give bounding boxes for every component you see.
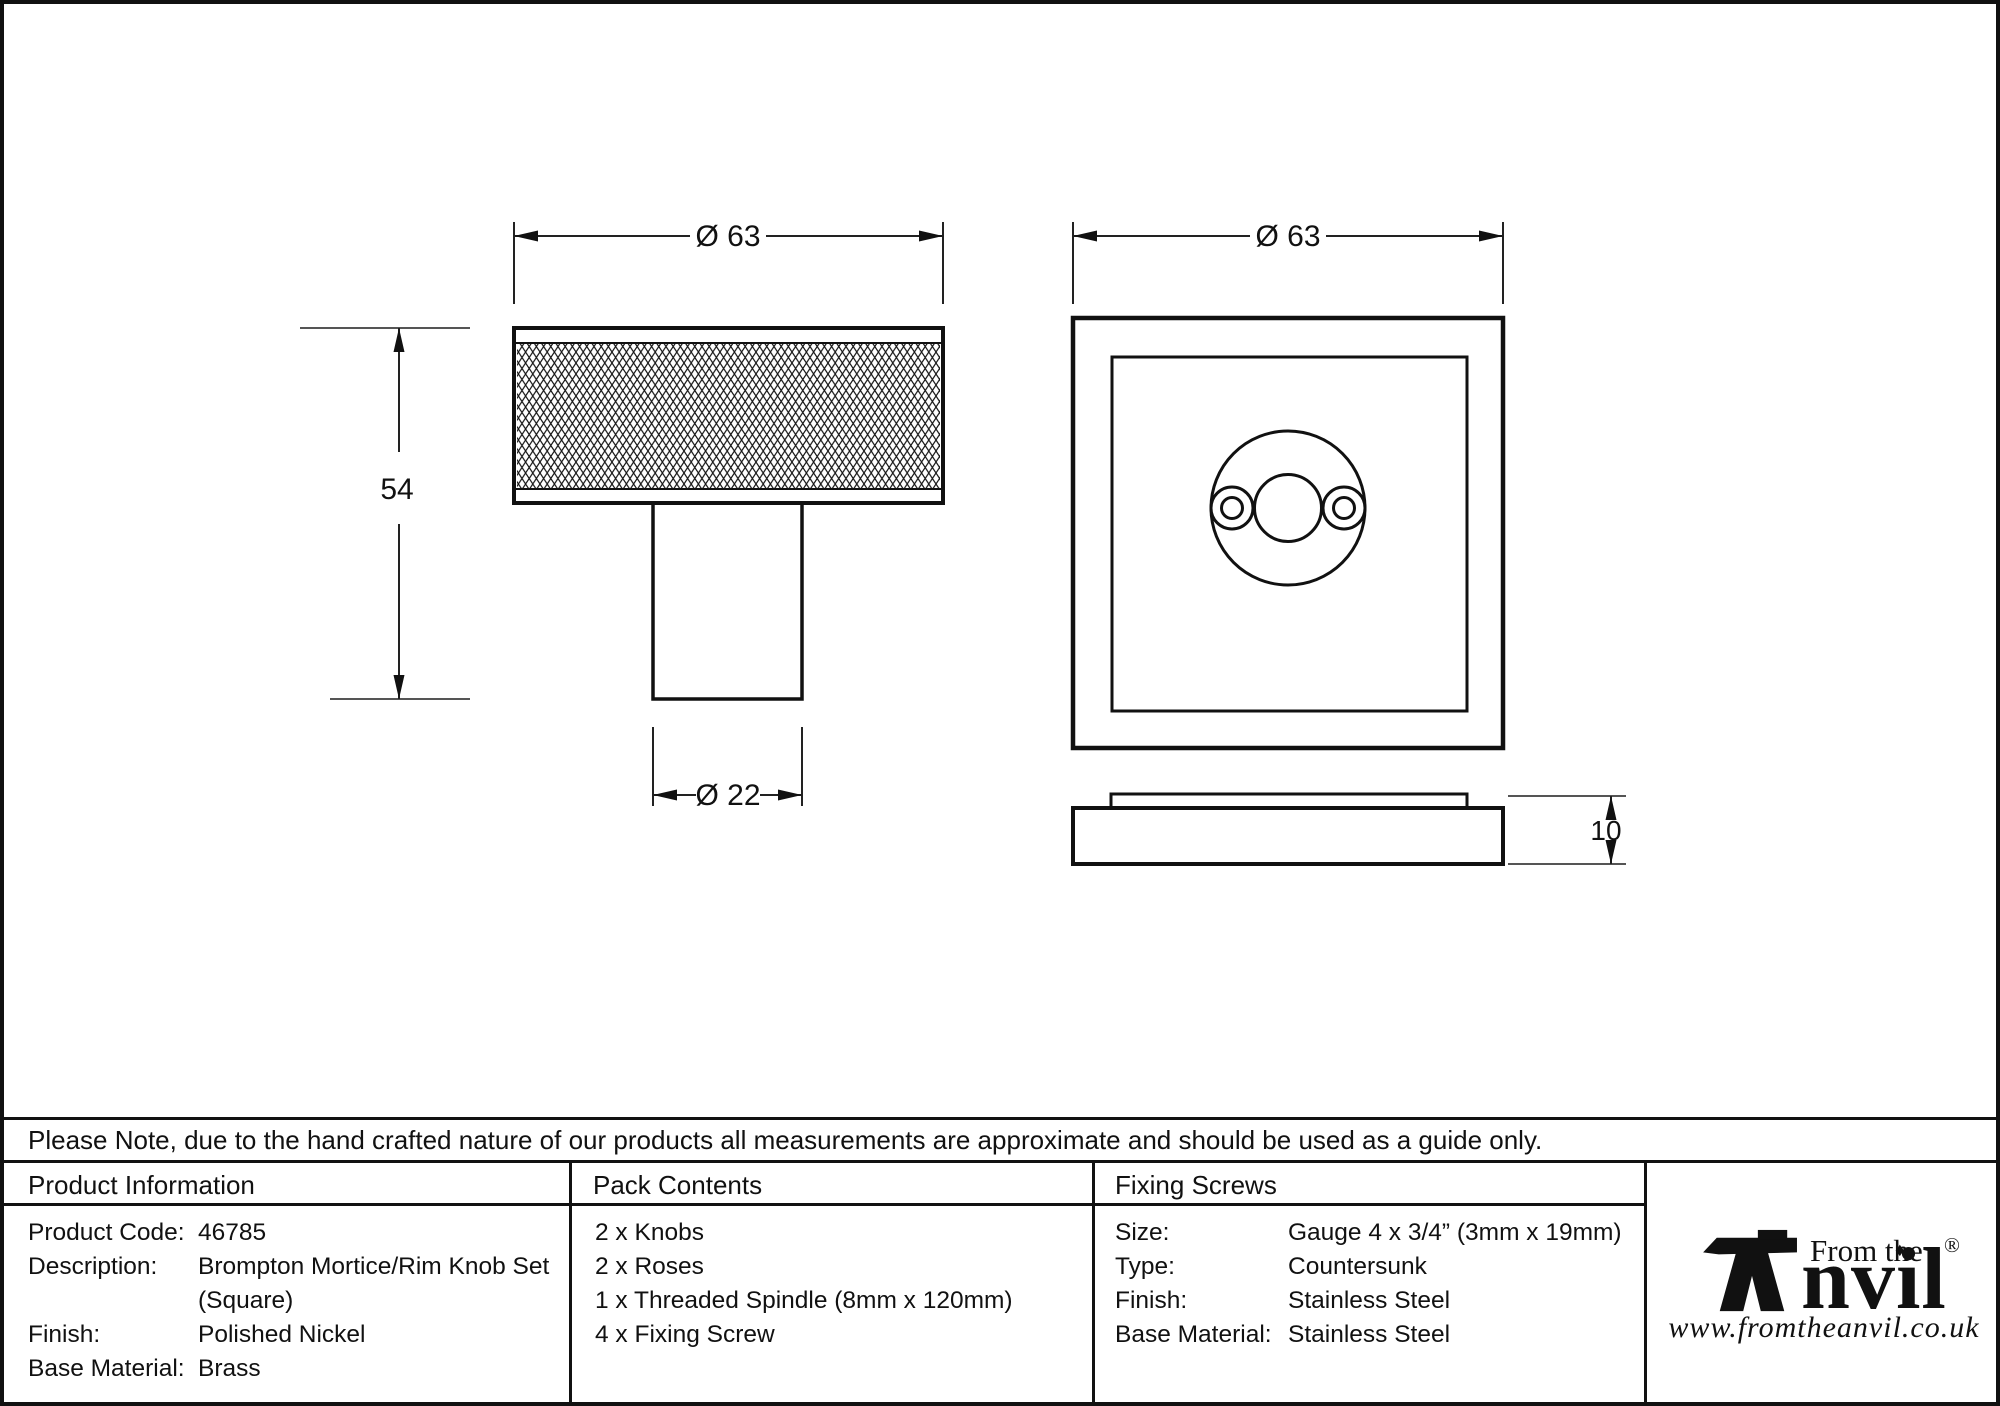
table-row: Finish: Stainless Steel xyxy=(1115,1284,1643,1318)
screw-hole-left xyxy=(1222,498,1243,519)
dim-knob-height-label: 54 xyxy=(380,473,413,506)
row-value: Polished Nickel xyxy=(198,1318,570,1352)
list-item: 1 x Threaded Spindle (8mm x 120mm) xyxy=(595,1284,1085,1318)
row-value: 46785 xyxy=(198,1216,570,1250)
row-label: Finish: xyxy=(28,1318,198,1352)
spec-sheet-page: Ø 63 54 xyxy=(0,0,2000,1406)
arrow-left-icon xyxy=(514,231,538,242)
table-row: Base Material: Brass xyxy=(28,1352,573,1386)
pack-contents-column: 2 x Knobs 2 x Roses 1 x Threaded Spindle… xyxy=(595,1216,1085,1352)
table-row: Size: Gauge 4 x 3/4” (3mm x 19mm) xyxy=(1115,1216,1643,1250)
table-row: Product Code: 46785 xyxy=(28,1216,573,1250)
row-value: Stainless Steel xyxy=(1288,1284,1643,1318)
column-divider-2 xyxy=(1092,1160,1095,1406)
disclaimer-note: Please Note, due to the hand crafted nat… xyxy=(28,1121,1928,1159)
row-value: Stainless Steel xyxy=(1288,1318,1643,1352)
list-item: 4 x Fixing Screw xyxy=(595,1318,1085,1352)
row-value: Brompton Mortice/Rim Knob Set (Square) xyxy=(198,1250,570,1318)
product-information-header: Product Information xyxy=(28,1170,255,1201)
product-information-column: Product Code: 46785 Description: Brompto… xyxy=(28,1216,573,1386)
rose-side-profile: 10 xyxy=(1073,794,1626,864)
dim-rose-width-label: Ø 63 xyxy=(1255,220,1320,253)
brand-logo: From the ♦ nvil ® www.fromtheanvil.co.uk xyxy=(1648,1163,2000,1402)
logo-url: www.fromtheanvil.co.uk xyxy=(1648,1311,2000,1345)
column-divider-3 xyxy=(1644,1160,1647,1406)
row-label: Product Code: xyxy=(28,1216,198,1250)
rose-front-view: Ø 63 xyxy=(1073,220,1503,748)
table-row: Type: Countersunk xyxy=(1115,1250,1643,1284)
dim-knob-diameter-label: Ø 63 xyxy=(695,220,760,253)
fixing-screws-column: Size: Gauge 4 x 3/4” (3mm x 19mm) Type: … xyxy=(1115,1216,1643,1352)
rose-profile-base xyxy=(1073,808,1503,864)
table-row: Base Material: Stainless Steel xyxy=(1115,1318,1643,1352)
row-value: Gauge 4 x 3/4” (3mm x 19mm) xyxy=(1288,1216,1643,1250)
row-label: Size: xyxy=(1115,1216,1288,1250)
dim-rose-thickness-label: 10 xyxy=(1590,815,1621,846)
anvil-icon xyxy=(1703,1227,1801,1315)
knob-knurl-pattern xyxy=(517,344,940,489)
dim-stem-diameter-label: Ø 22 xyxy=(695,779,760,812)
row-label: Description: xyxy=(28,1250,198,1318)
list-item: 2 x Roses xyxy=(595,1250,1085,1284)
arrow-right-icon xyxy=(919,231,943,242)
pack-contents-header: Pack Contents xyxy=(593,1170,762,1201)
registered-trademark-icon: ® xyxy=(1944,1233,1960,1258)
row-value: Brass xyxy=(198,1352,570,1386)
header-bottom-border xyxy=(0,1203,1646,1206)
table-row: Finish: Polished Nickel xyxy=(28,1318,573,1352)
fixing-screws-header: Fixing Screws xyxy=(1115,1170,1277,1201)
row-label: Finish: xyxy=(1115,1284,1288,1318)
technical-drawing: Ø 63 54 xyxy=(0,0,2000,1117)
list-item: 2 x Knobs xyxy=(595,1216,1085,1250)
knob-side-view: Ø 63 54 xyxy=(300,220,943,812)
row-label: Type: xyxy=(1115,1250,1288,1284)
knob-stem xyxy=(653,505,802,699)
row-value: Countersunk xyxy=(1288,1250,1643,1284)
note-top-border xyxy=(0,1117,2000,1120)
row-label: Base Material: xyxy=(1115,1318,1288,1352)
screw-hole-right xyxy=(1334,498,1355,519)
dim-knob-height xyxy=(300,328,470,699)
rose-profile-top-plate xyxy=(1111,794,1467,808)
table-row: Description: Brompton Mortice/Rim Knob S… xyxy=(28,1250,573,1318)
row-label: Base Material: xyxy=(28,1352,198,1386)
spindle-hole xyxy=(1255,475,1322,542)
